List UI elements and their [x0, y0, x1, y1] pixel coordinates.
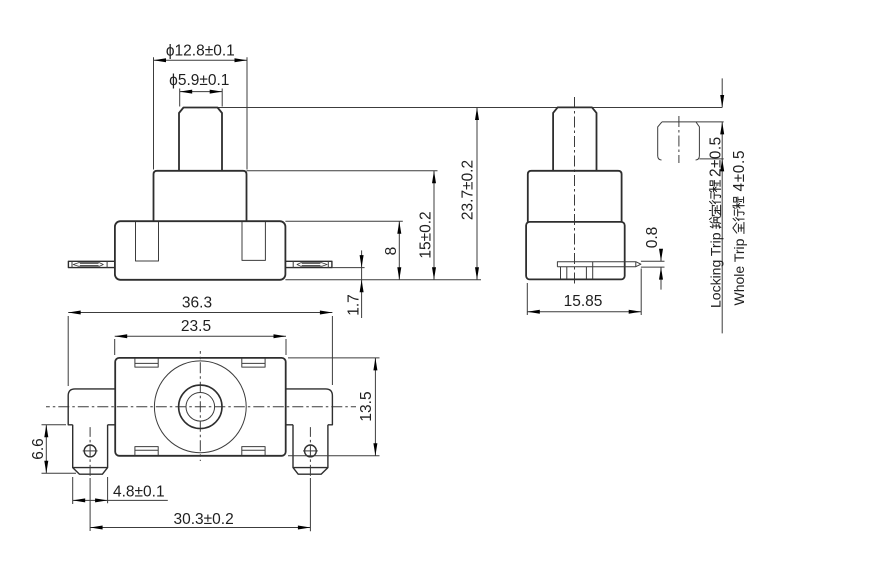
svg-text:23.5: 23.5 [181, 318, 211, 335]
svg-text:6.6: 6.6 [30, 438, 47, 460]
svg-text:Whole Trip: Whole Trip [731, 238, 747, 305]
svg-text:8: 8 [383, 247, 400, 256]
svg-text:4±0.5: 4±0.5 [731, 150, 748, 192]
svg-text:0.8: 0.8 [644, 227, 661, 249]
svg-text:23.7±0.2: 23.7±0.2 [460, 160, 477, 220]
svg-text:36.3: 36.3 [182, 295, 212, 312]
svg-text:4.8±0.1: 4.8±0.1 [113, 484, 165, 501]
svg-text:1.7: 1.7 [345, 294, 362, 316]
svg-text:ϕ12.8±0.1: ϕ12.8±0.1 [166, 42, 235, 59]
svg-text:Locking Trip: Locking Trip [708, 232, 724, 308]
svg-text:15.85: 15.85 [564, 293, 603, 310]
svg-text:30.3±0.2: 30.3±0.2 [173, 511, 233, 528]
svg-text:15±0.2: 15±0.2 [418, 211, 435, 258]
svg-text:ϕ5.9±0.1: ϕ5.9±0.1 [169, 72, 229, 89]
svg-text:13.5: 13.5 [358, 391, 375, 421]
svg-text:2±0.5: 2±0.5 [708, 136, 725, 177]
